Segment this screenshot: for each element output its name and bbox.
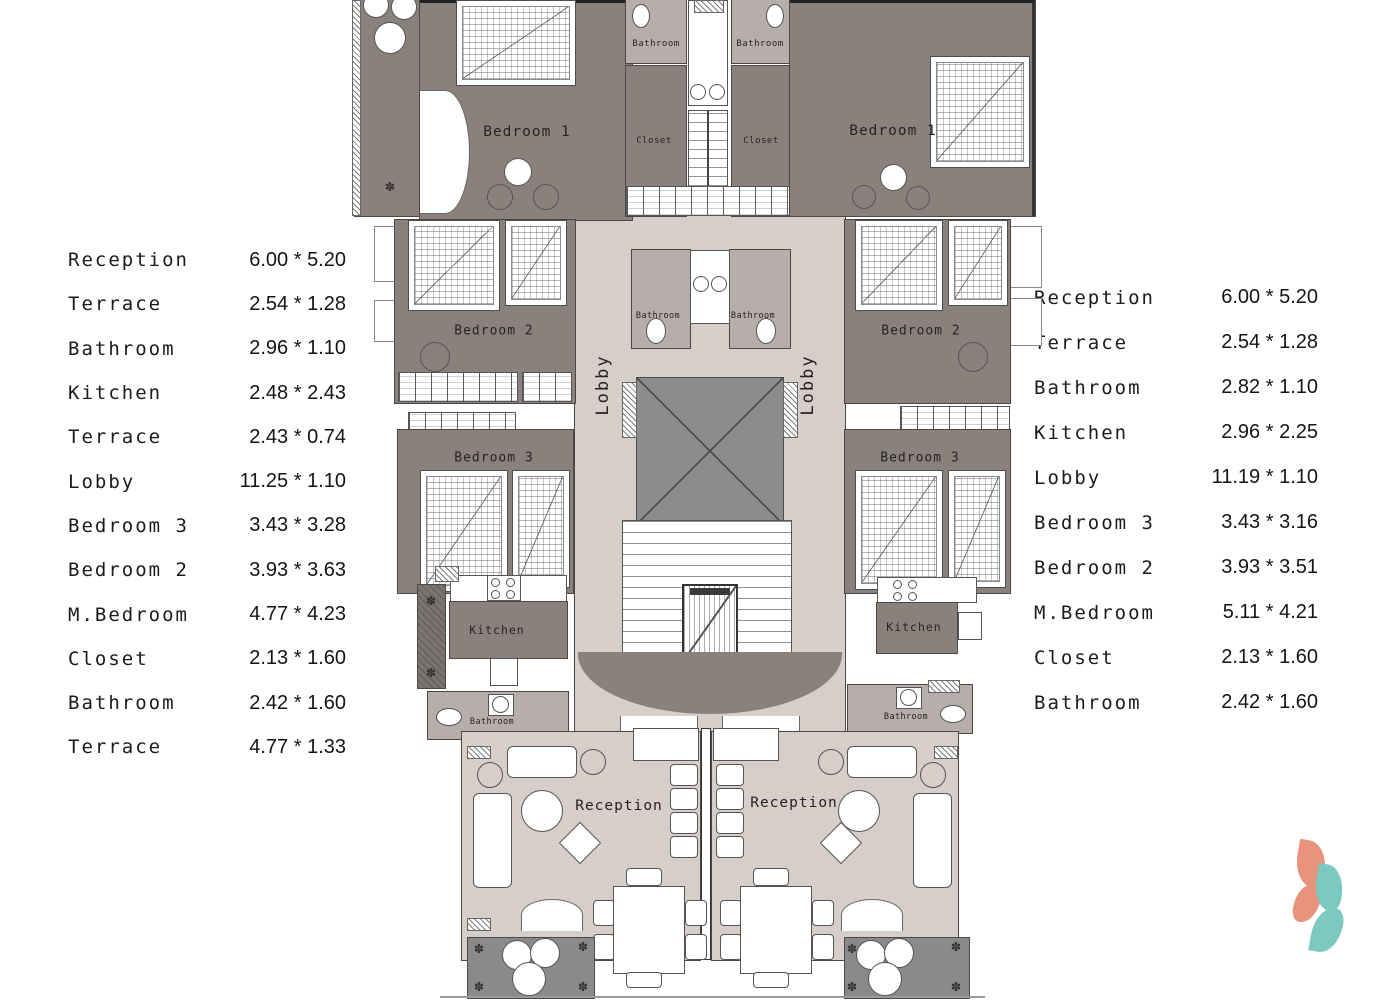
elevator-shaft [637,378,783,524]
bed [456,0,576,86]
label-reception-left: Reception [575,798,663,814]
dining-chair [812,934,834,960]
ottoman [420,342,450,372]
burner [893,580,902,589]
floor-plan: ✽ Bedroom 1 Bathroom Bathroom Closet Clo… [0,0,1400,1000]
console-table [633,728,699,761]
dining-chair [812,900,834,926]
dining-table [740,886,812,974]
dining-chair [716,812,744,834]
planter [374,22,406,54]
coffee-table [521,790,563,832]
burner [908,580,917,589]
label-reception-right: Reception [750,795,838,811]
toilet [632,4,650,28]
label-kitchen-left: Kitchen [469,623,524,637]
dining-chair [753,868,789,886]
column-hatch [783,382,798,438]
label-bedroom3-left: Bedroom 3 [454,451,533,466]
plant-icon: ✽ [426,591,435,609]
plant-icon: ✽ [951,977,960,995]
floor-plan-sheet: Reception 6.00 * 5.20 Terrace 2.54 * 1.2… [0,0,1400,1000]
sink [711,276,727,292]
plant-icon: ✽ [951,937,960,955]
side-table [504,158,532,186]
sofa [507,746,577,778]
side-table [580,749,606,775]
side-table [477,762,503,788]
dining-chair [593,934,615,960]
label-bathroom-mid-right: Bathroom [731,311,775,321]
label-closet-right: Closet [743,136,779,146]
side-table [920,762,946,788]
wall-hatch [694,0,724,13]
wall-cabinet [1010,226,1042,288]
label-closet-left: Closet [636,136,672,146]
plan-boundary [440,996,985,998]
dining-chair [716,836,744,858]
bed [420,470,508,592]
wardrobe [900,406,1010,432]
sofa [913,793,952,888]
label-bedroom1-right: Bedroom 1 [849,123,937,139]
kitchen-sink [958,612,982,640]
plant-icon: ✽ [847,939,856,957]
dining-chair [670,812,698,834]
stool [487,184,513,210]
burner [491,578,500,587]
burner [491,590,500,599]
dining-chair [670,788,698,810]
terrace-door-arc [841,899,903,931]
wall-hatch [467,746,491,759]
bed [930,56,1030,168]
label-kitchen-right: Kitchen [886,620,941,634]
sink [709,84,725,100]
label-bathroom-mid-left: Bathroom [636,311,680,321]
wall-hatch [435,566,459,582]
kitchen-counter [877,577,977,603]
label-bedroom3-right: Bedroom 3 [880,451,959,466]
label-bedroom2-left: Bedroom 2 [454,324,533,339]
ottoman [958,342,988,372]
label-bathroom-small-right: Bathroom [884,712,928,722]
burner [908,592,917,601]
label-lobby-left: Lobby [593,354,613,415]
plant-icon: ✽ [385,177,394,195]
console-table [713,728,779,761]
company-logo [1288,835,1348,940]
plant-icon: ✽ [578,977,587,995]
toilet [756,318,776,344]
plant-icon: ✽ [474,977,483,995]
wall-hatch [467,918,491,931]
dining-chair [685,900,707,926]
bed [408,220,500,311]
sofa [847,746,917,778]
dining-chair [716,764,744,786]
railing-hatch [352,0,361,216]
dining-chair [753,972,789,988]
wardrobe-shelf [626,186,790,216]
toilet [646,318,666,344]
toilet [940,705,966,723]
side-table [880,164,907,191]
wardrobe [522,372,572,402]
label-lobby-right: Lobby [798,354,818,415]
label-bedroom1-left: Bedroom 1 [483,124,571,140]
plant-icon: ✽ [847,977,856,995]
label-bathroom-small-left: Bathroom [470,717,514,727]
terrace-door-arc [521,899,583,931]
dining-chair [626,972,662,988]
side-table [818,749,844,775]
wall-hatch [928,680,960,693]
burner [506,578,515,587]
kitchen-sink [490,658,518,686]
bed [505,220,567,306]
dining-chair [670,764,698,786]
dining-chair [670,836,698,858]
bed [855,220,943,311]
burner [893,592,902,601]
bed [948,470,1006,588]
dining-chair [626,868,662,886]
sink [690,84,706,100]
sink [900,689,917,706]
bed [512,470,570,588]
door-arc [420,90,470,214]
toilet [766,4,784,28]
dining-chair [716,788,744,810]
bed [948,220,1008,306]
burner [506,590,515,599]
dining-chair [720,900,742,926]
elevator-cab [682,584,738,662]
planter [868,962,902,996]
toilet [436,708,462,726]
stool [852,185,876,209]
dining-chair [593,900,615,926]
elevator-door [690,588,730,595]
stool [906,186,930,210]
wall-hatch [934,746,958,759]
plant-icon: ✽ [474,939,483,957]
plant-icon: ✽ [426,663,435,681]
bed [855,470,943,590]
planter [512,962,546,996]
column-hatch [622,382,637,438]
sofa [473,793,512,888]
dining-chair [720,934,742,960]
label-bathroom-top-right: Bathroom [736,39,783,49]
wall-cabinet [1010,298,1042,346]
plant-icon: ✽ [578,937,587,955]
label-bathroom-top-left: Bathroom [632,39,679,49]
dining-table [613,886,685,974]
label-bedroom2-right: Bedroom 2 [881,324,960,339]
sink [492,696,509,713]
sink [693,276,709,292]
dining-chair [685,934,707,960]
wardrobe [398,372,518,402]
stool [533,184,559,210]
